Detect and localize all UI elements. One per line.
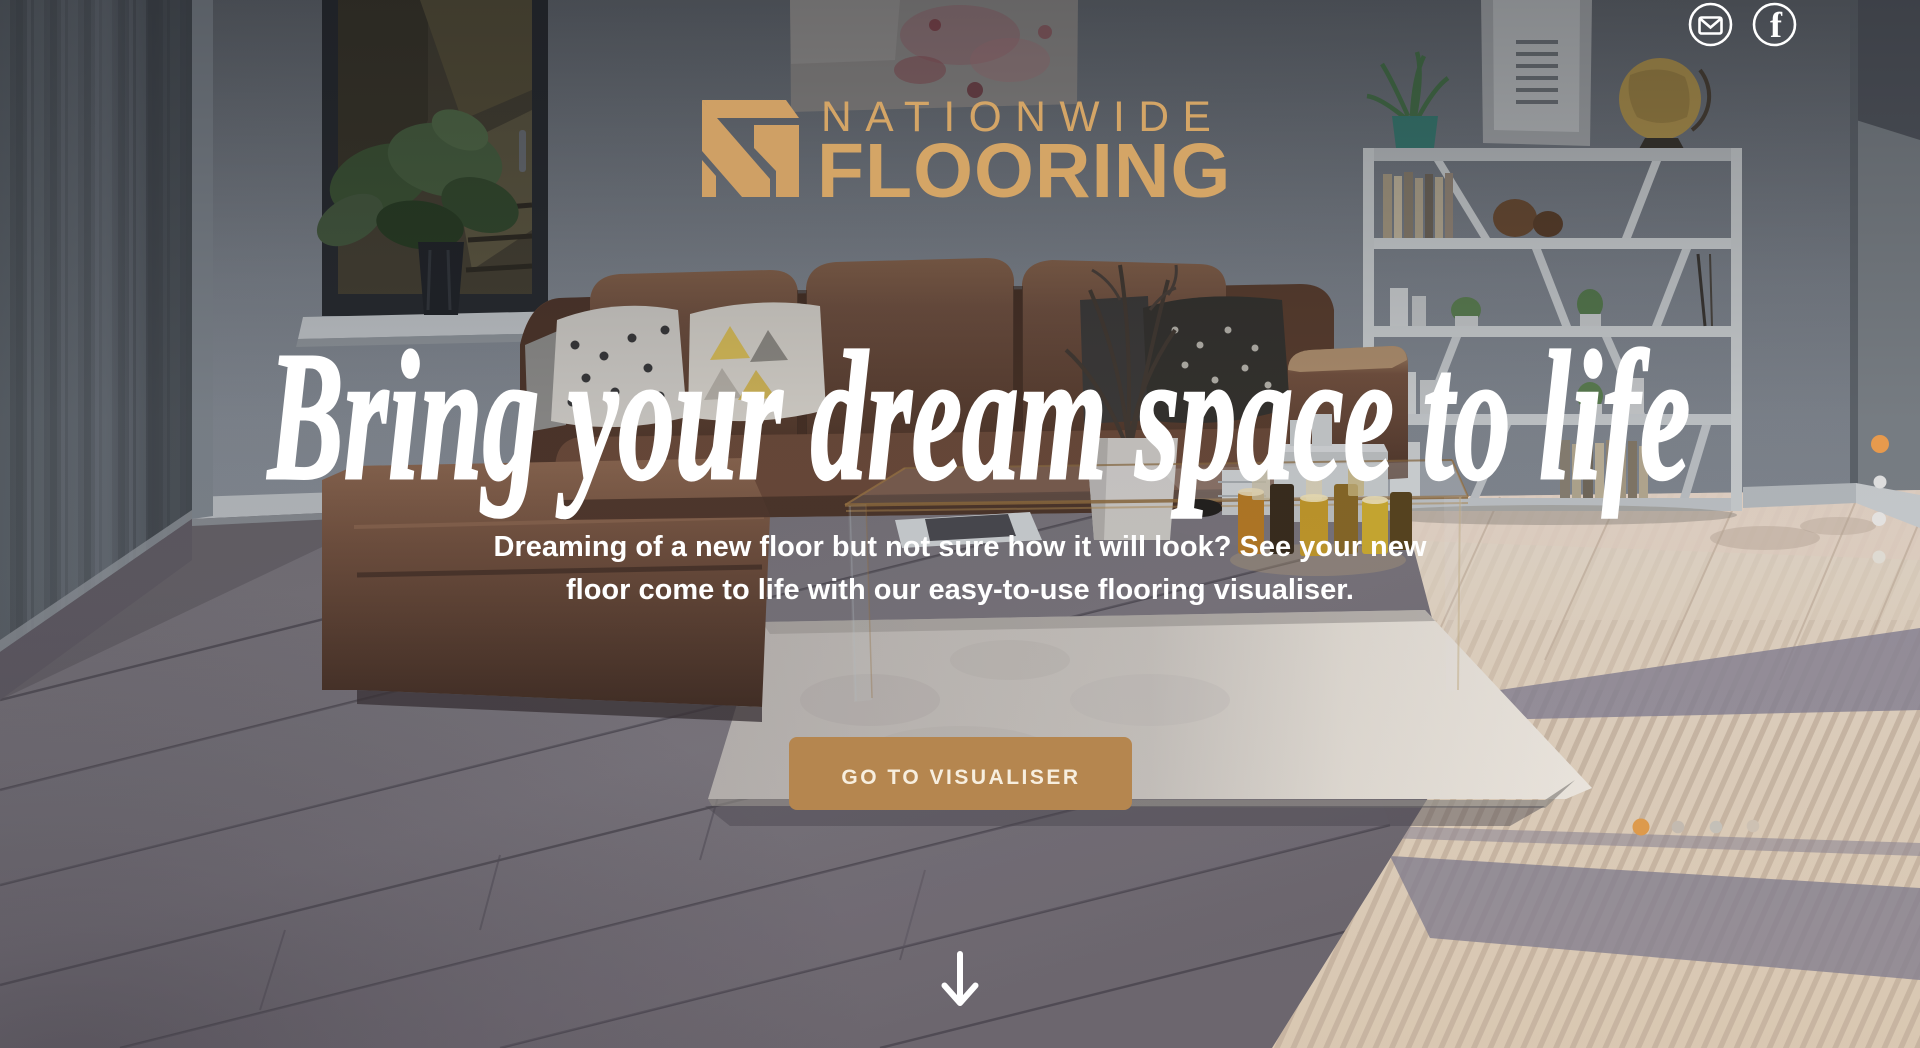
svg-text:GO TO VISUALISER: GO TO VISUALISER — [841, 766, 1080, 789]
svg-text:FLOORING: FLOORING — [817, 128, 1231, 214]
svg-text:floor come to life with our ea: floor come to life with our easy-to-use … — [566, 574, 1354, 606]
svg-text:Bring your dream space to life: Bring your dream space to life — [267, 314, 1691, 519]
svg-text:f: f — [1770, 5, 1783, 45]
svg-text:Dreaming of a new floor but no: Dreaming of a new floor but not sure how… — [494, 531, 1427, 563]
